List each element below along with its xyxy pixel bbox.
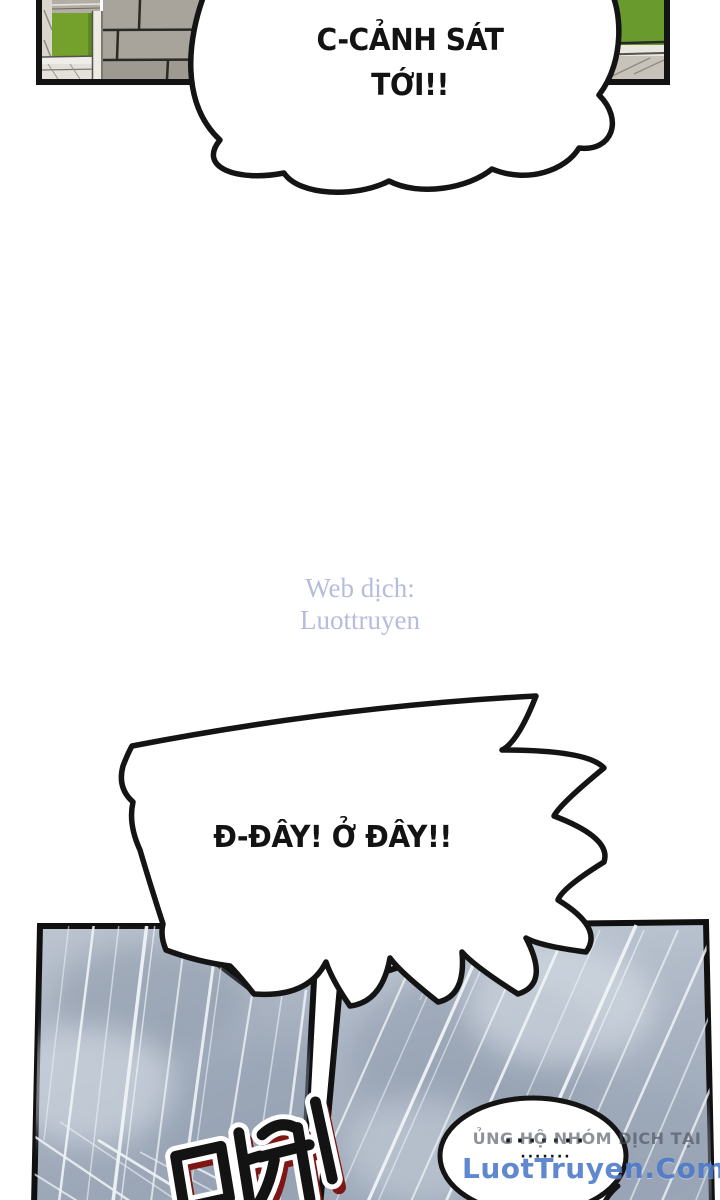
bubble-2-line-1: Đ-ĐÂY! Ở ĐÂY!! [194,820,471,856]
grass-hedge [52,13,92,57]
bubble-1-line-2: TỚI!! [293,63,528,108]
comic-page[interactable]: C-CẢNH SÁT TỚI!! Web dịch: Luottruyen [0,0,720,1200]
site-watermark-url: LuotTruyen.Com [444,1153,720,1185]
center-watermark-line-1: Web dịch: [0,572,720,604]
bubble-1-text: C-CẢNH SÁT TỚI!! [293,18,528,108]
bubble-1-line-1: C-CẢNH SÁT [293,18,528,63]
bottom-panels-art [0,690,720,1200]
center-watermark-line-2: Luottruyen [0,604,720,636]
center-watermark: Web dịch: Luottruyen [0,572,720,636]
bubble-2-text: Đ-ĐÂY! Ở ĐÂY!! [194,820,471,856]
site-watermark-tagline: ỦNG HỘ NHÓM DỊCH TẠI [452,1129,720,1149]
